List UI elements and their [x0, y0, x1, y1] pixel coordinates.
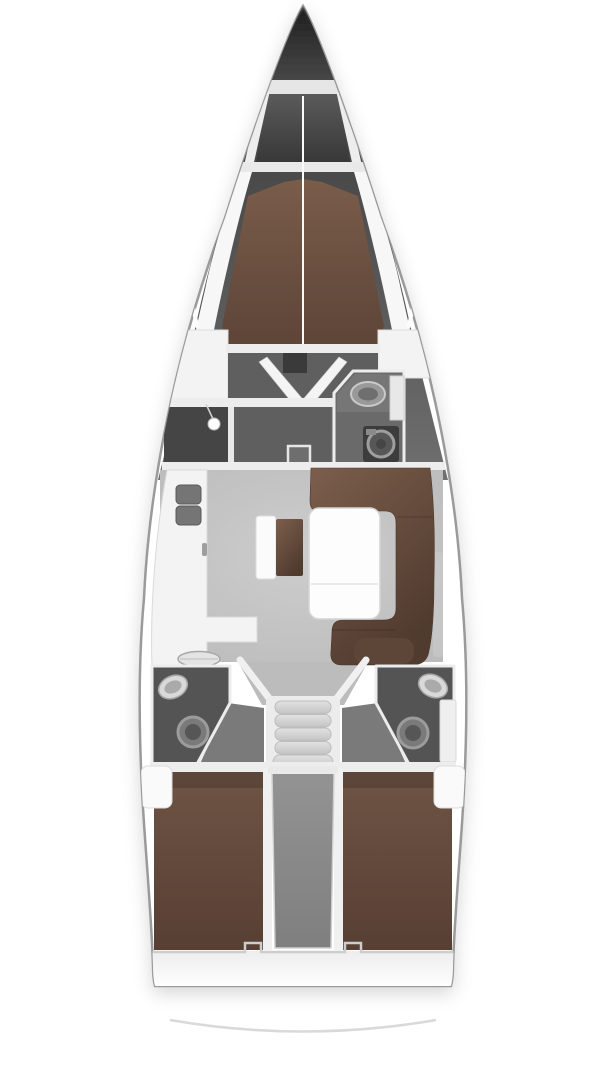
floor-plan-canvas: [0, 0, 608, 1080]
engine-box-cap: [268, 766, 338, 774]
engine-box-wall-starboard: [334, 768, 343, 950]
galley-handle: [202, 543, 207, 556]
hanging-locker: [283, 353, 307, 373]
galley-sink-fwd: [176, 485, 201, 504]
port-side-shelf: [141, 766, 172, 808]
corridor-wall: [162, 398, 335, 407]
yacht-floor-plan: [0, 0, 608, 1080]
hull-window-port-aft: [150, 427, 156, 461]
forward-head: [334, 371, 404, 465]
hull-window-starboard-aft: [450, 427, 456, 461]
stair-tread: [275, 715, 331, 728]
stair-tread: [275, 728, 331, 741]
stern-platform-line: [170, 1020, 436, 1032]
interior: [141, 6, 465, 989]
head-cabinet: [390, 376, 404, 420]
engine-compartment: [272, 772, 334, 948]
bow-tip: [264, 6, 342, 90]
transom-band: [150, 951, 458, 989]
shower-room: [164, 404, 234, 470]
saloon-table: [309, 508, 380, 619]
stair-tread: [275, 742, 331, 755]
engine-box-wall-port: [263, 768, 272, 950]
saloon-bench: [256, 516, 303, 579]
shower-head-icon: [208, 418, 220, 430]
stair-tread: [275, 701, 331, 714]
starboard-side-shelf: [434, 766, 465, 808]
corridor-floor: [232, 407, 331, 470]
forward-cabin-bulkhead: [226, 344, 380, 353]
galley-sink-aft: [176, 506, 201, 525]
head-cabinet: [440, 700, 456, 762]
